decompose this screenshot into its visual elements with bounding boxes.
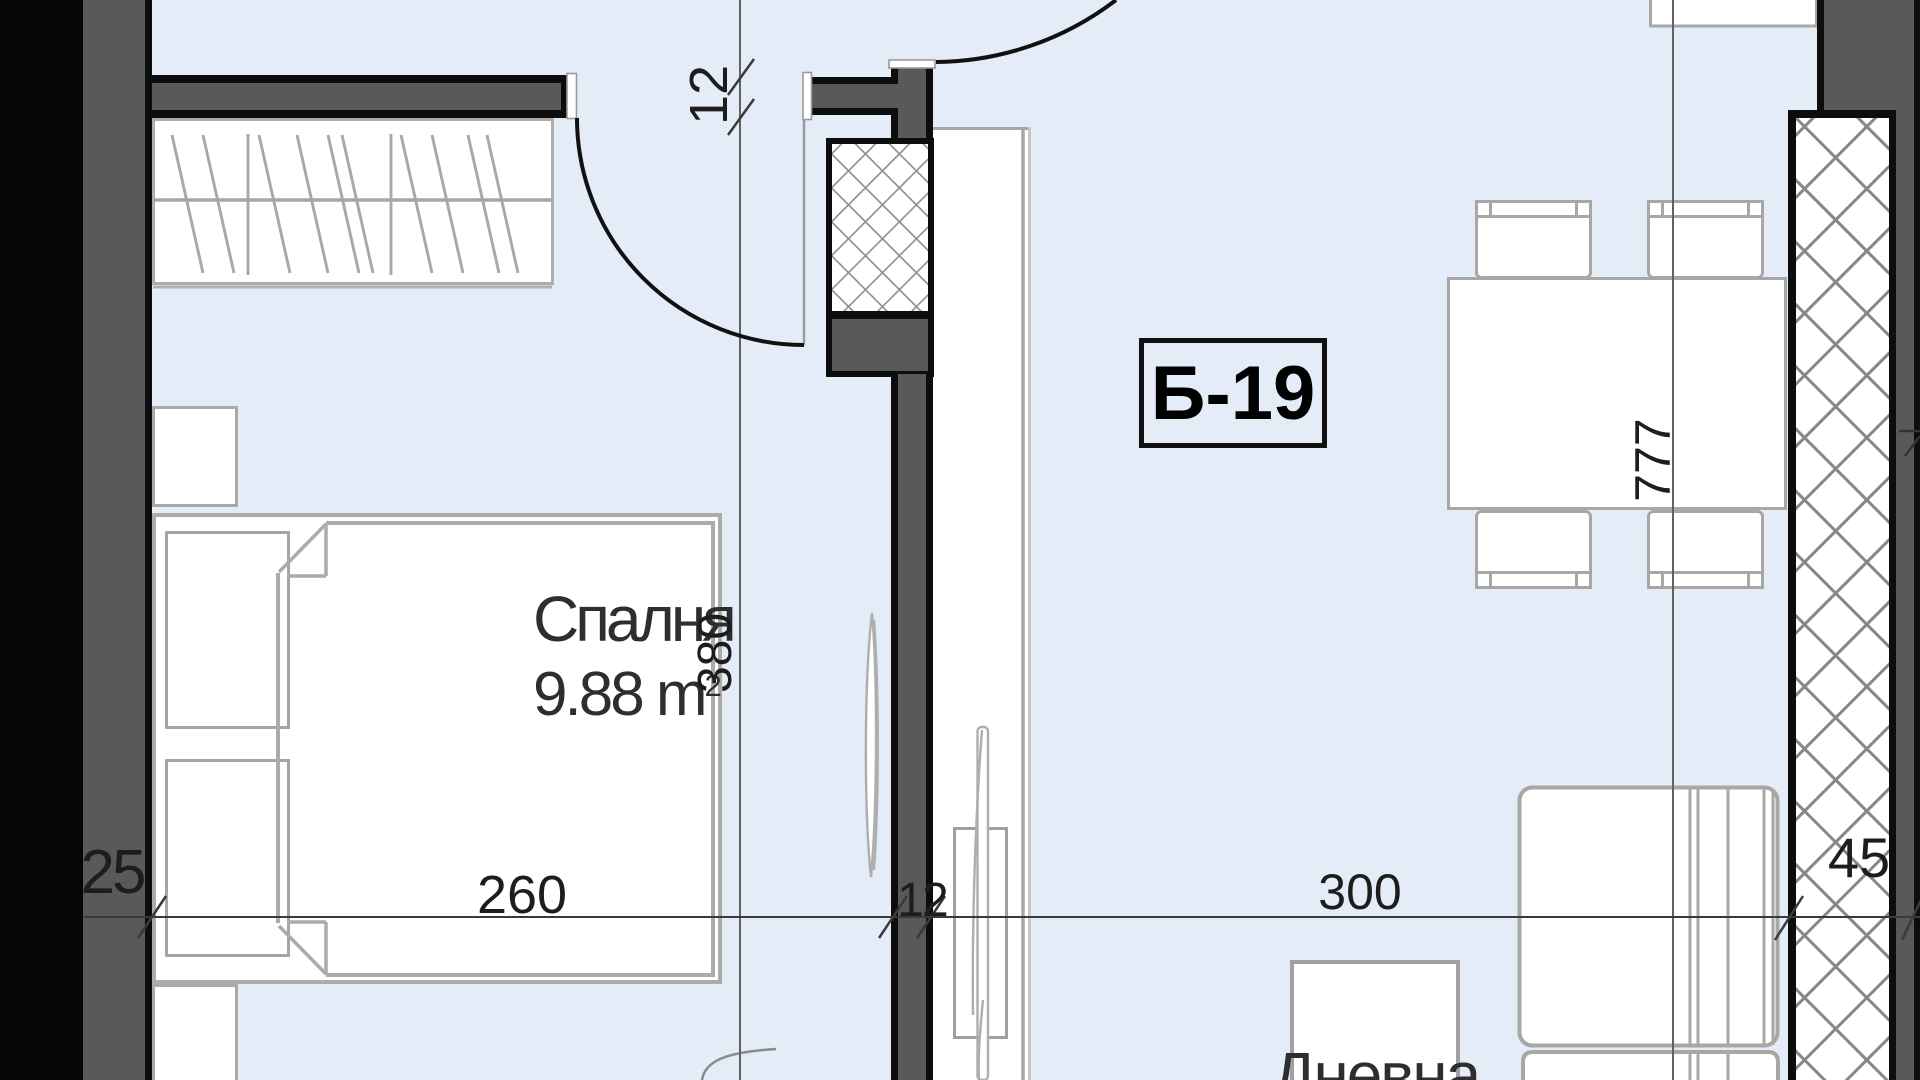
svg-text:260: 260 [477, 865, 567, 925]
svg-text:12: 12 [679, 65, 739, 125]
svg-text:380: 380 [689, 613, 742, 693]
svg-text:12: 12 [897, 874, 947, 927]
svg-text:45: 45 [1828, 826, 1890, 889]
svg-text:Дневна: Дневна [1272, 1039, 1482, 1080]
svg-text:Б-19: Б-19 [1151, 351, 1315, 436]
svg-text:777: 777 [1625, 418, 1681, 501]
svg-text:300: 300 [1318, 864, 1401, 920]
svg-text:25: 25 [81, 838, 144, 907]
